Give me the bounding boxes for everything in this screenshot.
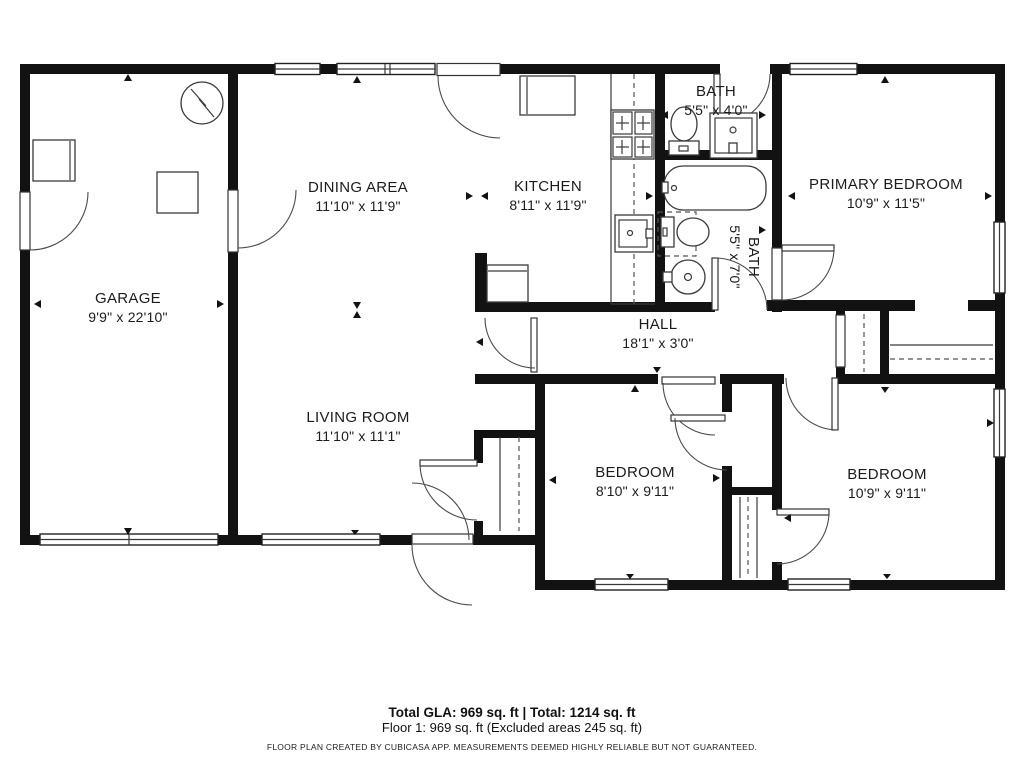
- toilet-icon: [658, 212, 709, 256]
- cabinet-icon: [487, 265, 528, 302]
- room-name: LIVING ROOM: [306, 409, 409, 428]
- window-icon: [337, 64, 435, 75]
- fixtures: [33, 74, 993, 578]
- garage-side-door-icon: [20, 192, 88, 250]
- window-icon: [275, 64, 320, 75]
- entry-door-icon: [412, 483, 473, 605]
- room-label-bath-2: BATH 5'5" x 7'0": [726, 225, 762, 288]
- garage-to-dining-door-icon: [228, 190, 296, 252]
- refrigerator-icon: [520, 76, 575, 115]
- coat-closet-door-icon: [420, 460, 477, 520]
- room-dims: 5'5" x 4'0": [684, 102, 747, 120]
- windows: [40, 64, 1005, 591]
- garage-door-icon: [40, 534, 218, 545]
- window-icon: [262, 534, 380, 545]
- room-name: BATH: [743, 225, 762, 288]
- dining-exterior-door-icon: [437, 64, 500, 139]
- room-label-kitchen: KITCHEN 8'11" x 11'9": [509, 178, 586, 214]
- room-dims: 10'9" x 9'11": [847, 485, 927, 503]
- window-icon: [788, 579, 850, 590]
- window-icon: [994, 222, 1005, 293]
- room-label-bedroom-1: BEDROOM 8'10" x 9'11": [595, 464, 675, 500]
- floor-area-detail: Floor 1: 969 sq. ft (Excluded areas 245 …: [0, 720, 1024, 735]
- room-name: BEDROOM: [595, 464, 675, 483]
- room-label-garage: GARAGE 9'9" x 22'10": [88, 290, 167, 326]
- room-name: HALL: [622, 316, 693, 335]
- water-heater-icon: [33, 140, 75, 181]
- bedroom1-closet-door-icon: [671, 415, 727, 470]
- room-label-hall: HALL 18'1" x 3'0": [622, 316, 693, 352]
- room-name: BEDROOM: [847, 466, 927, 485]
- window-icon: [994, 389, 1005, 457]
- window-icon: [790, 64, 857, 75]
- closet-shelving: [500, 314, 993, 578]
- measurement-markers: [34, 74, 994, 579]
- room-label-bedroom-2: BEDROOM 10'9" x 9'11": [847, 466, 927, 502]
- room-name: BATH: [684, 83, 747, 102]
- hall-closet-west-door-icon: [485, 318, 537, 372]
- room-dims: 8'10" x 9'11": [595, 483, 675, 501]
- bathroom-sink-icon: [710, 113, 757, 158]
- walls: [20, 64, 1005, 590]
- electrical-panel-icon: [181, 82, 223, 124]
- disclaimer-text: FLOOR PLAN CREATED BY CUBICASA APP. MEAS…: [0, 742, 1024, 752]
- total-area-summary: Total GLA: 969 sq. ft | Total: 1214 sq. …: [0, 705, 1024, 720]
- round-sink-icon: [663, 260, 705, 294]
- window-icon: [595, 579, 668, 590]
- hall-closet-east-door-icon: [836, 315, 845, 367]
- primary-bedroom-door-icon: [772, 245, 834, 300]
- bedroom1-door-icon: [662, 377, 715, 435]
- appliance-icon: [157, 172, 198, 213]
- floor-plan-page: GARAGE 9'9" x 22'10" DINING AREA 11'10" …: [0, 0, 1024, 768]
- kitchen-counter: [611, 74, 655, 304]
- bedroom2-closet-door-icon: [777, 509, 829, 564]
- room-name: KITCHEN: [509, 178, 586, 197]
- room-dims: 5'5" x 7'0": [726, 225, 744, 288]
- kitchen-sink-icon: [615, 215, 653, 252]
- room-dims: 18'1" x 3'0": [622, 335, 693, 353]
- bedroom2-door-icon: [786, 378, 838, 430]
- room-dims: 11'10" x 11'1": [306, 428, 409, 446]
- room-name: DINING AREA: [308, 179, 408, 198]
- bathtub-icon: [662, 166, 766, 210]
- room-name: GARAGE: [88, 290, 167, 309]
- floor-plan-drawing: [0, 0, 1024, 768]
- room-name: PRIMARY BEDROOM: [809, 176, 963, 195]
- room-label-primary-bedroom: PRIMARY BEDROOM 10'9" x 11'5": [809, 176, 963, 212]
- room-dims: 11'10" x 11'9": [308, 198, 408, 216]
- room-dims: 9'9" x 22'10": [88, 309, 167, 327]
- room-label-bath-1: BATH 5'5" x 4'0": [684, 83, 747, 119]
- room-dims: 8'11" x 11'9": [509, 197, 586, 215]
- room-label-living-room: LIVING ROOM 11'10" x 11'1": [306, 409, 409, 445]
- room-dims: 10'9" x 11'5": [809, 195, 963, 213]
- stove-icon: [611, 110, 654, 159]
- room-label-dining-area: DINING AREA 11'10" x 11'9": [308, 179, 408, 215]
